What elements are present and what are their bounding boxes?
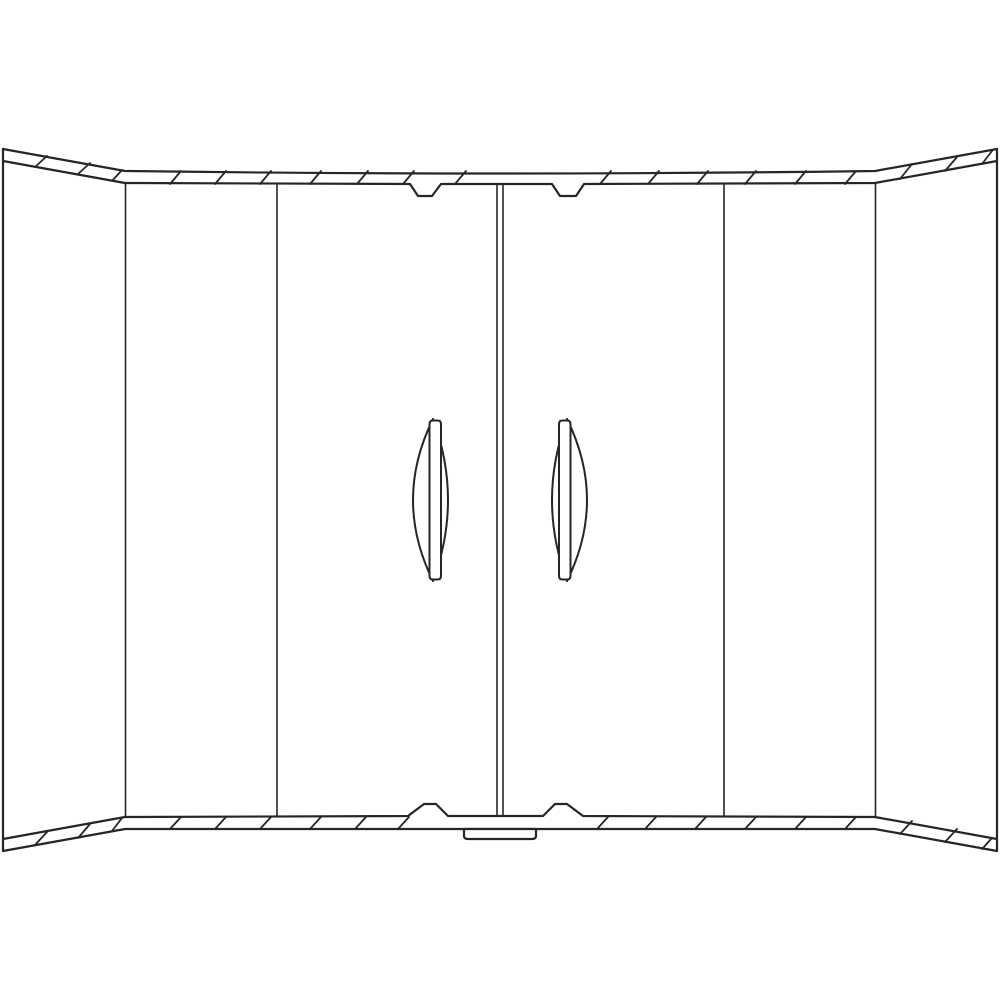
top-rail-lower-edge-with-notches (3, 161, 997, 196)
outer-frame (3, 149, 997, 850)
right-door-handle-bar (559, 421, 571, 580)
top-rail-segment-hatching (35, 151, 992, 184)
top-rail-upper-edge (3, 149, 997, 174)
drawing-canvas (0, 0, 1000, 1000)
center-door-gap-lines (497, 184, 503, 816)
bottom-rail (3, 804, 997, 851)
panel-dividers (126, 184, 876, 816)
left-door-handle-bar (430, 421, 442, 580)
vertical-panel-divider-lines (126, 184, 876, 816)
bottom-latch-plate (464, 829, 536, 839)
wardrobe-line-drawing (0, 0, 1000, 1000)
top-rail (3, 149, 997, 196)
door-handles (413, 419, 587, 581)
